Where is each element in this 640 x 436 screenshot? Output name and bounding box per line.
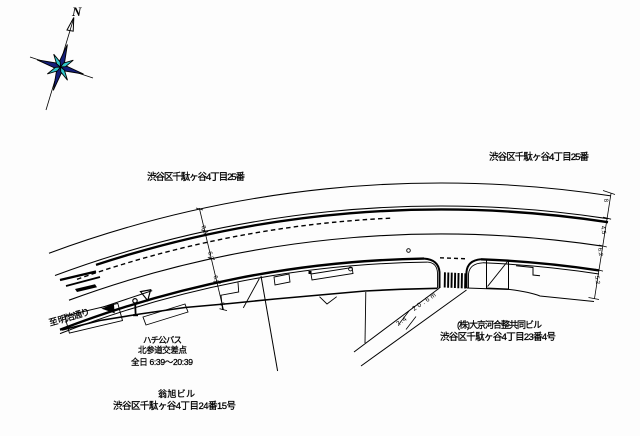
svg-text:ハチ公バス: ハチ公バス [143,335,182,345]
svg-text:5.2: 5.2 [593,275,600,285]
svg-text:全日 6:39～20:39: 全日 6:39～20:39 [131,357,193,367]
svg-text:N: N [71,4,82,19]
svg-text:4.5: 4.5 [599,225,606,235]
svg-text:(株)大京河合整共同ビル: (株)大京河合整共同ビル [457,319,542,330]
svg-text:渋谷区千駄ヶ谷4丁目25番: 渋谷区千駄ヶ谷4丁目25番 [147,171,245,183]
svg-text:渋谷区千駄ヶ谷4丁目25番: 渋谷区千駄ヶ谷4丁目25番 [489,151,589,163]
svg-text:渋谷区千駄ヶ谷4丁目24番15号: 渋谷区千駄ヶ谷4丁目24番15号 [113,400,236,412]
svg-text:渋谷区千駄ヶ谷4丁目23番4号: 渋谷区千駄ヶ谷4丁目23番4号 [440,331,556,343]
svg-text:翁旭ビル: 翁旭ビル [158,388,195,399]
svg-text:北参道交差点: 北参道交差点 [138,345,187,355]
svg-text:6.2: 6.2 [596,247,603,257]
